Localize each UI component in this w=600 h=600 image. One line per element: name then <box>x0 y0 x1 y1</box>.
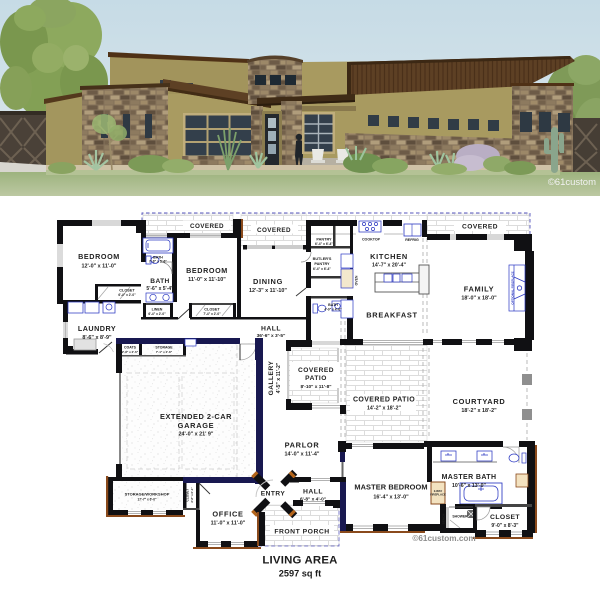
svg-text:6'-4" x 6'-4": 6'-4" x 6'-4" <box>315 242 333 246</box>
svg-text:17'-7" x 6'-0": 17'-7" x 6'-0" <box>137 498 157 502</box>
svg-text:12'-3" x 11'-10": 12'-3" x 11'-10" <box>249 288 287 294</box>
svg-text:HALL: HALL <box>261 326 281 333</box>
svg-text:6'-4" x 2'-0": 6'-4" x 2'-0" <box>148 312 166 316</box>
svg-text:OVEN: OVEN <box>355 275 359 285</box>
svg-text:KITCHEN: KITCHEN <box>370 252 408 261</box>
svg-text:11'-0" x 11'-0": 11'-0" x 11'-0" <box>211 521 246 527</box>
svg-text:MASTER BEDROOM: MASTER BEDROOM <box>354 483 427 492</box>
svg-text:COVERED: COVERED <box>190 223 224 230</box>
svg-text:GARAGE: GARAGE <box>178 421 215 430</box>
svg-text:SHOWER: SHOWER <box>452 515 468 519</box>
svg-text:BATH: BATH <box>328 303 338 307</box>
svg-text:PATIO: PATIO <box>305 375 327 382</box>
svg-text:18'-0" x 18'-0": 18'-0" x 18'-0" <box>461 296 497 302</box>
svg-text:18'-2" x 18'-2": 18'-2" x 18'-2" <box>461 408 497 414</box>
svg-text:CLOSET: CLOSET <box>490 514 520 521</box>
svg-text:14'-7" x 20'-4": 14'-7" x 20'-4" <box>372 263 406 269</box>
svg-text:6'-4" x 2'-0": 6'-4" x 2'-0" <box>118 293 136 297</box>
svg-text:6'-8" x 4'-0": 6'-8" x 4'-0" <box>300 497 326 503</box>
svg-text:2'-8" x 6'-1": 2'-8" x 6'-1" <box>190 487 194 503</box>
svg-text:6'-4" x 6'-4": 6'-4" x 6'-4" <box>313 267 331 271</box>
svg-text:CLOSET: CLOSET <box>186 488 190 501</box>
svg-text:4'-5" x 11'-2": 4'-5" x 11'-2" <box>276 362 282 393</box>
svg-text:11'-0" x 11'-10": 11'-0" x 11'-10" <box>188 277 226 283</box>
svg-text:BEDROOM: BEDROOM <box>186 266 228 275</box>
svg-text:REFRIG: REFRIG <box>405 238 419 242</box>
svg-text:EXTENDED 2-CAR: EXTENDED 2-CAR <box>160 412 232 421</box>
svg-text:9'-0" x 8'-3": 9'-0" x 8'-3" <box>491 523 519 529</box>
svg-text:2'-8" x 2'-6": 2'-8" x 2'-6" <box>122 350 139 354</box>
svg-text:COVERED: COVERED <box>298 367 334 374</box>
svg-text:14'-2" x 18'-2": 14'-2" x 18'-2" <box>367 406 401 412</box>
svg-text:PANTRY: PANTRY <box>314 262 330 266</box>
svg-text:LIVING AREA: LIVING AREA <box>262 555 337 567</box>
svg-text:36'-6" x 3'-5": 36'-6" x 3'-5" <box>257 333 286 339</box>
svg-text:BREAKFAST: BREAKFAST <box>366 311 417 320</box>
svg-text:OPTIONAL FIREPLACE: OPTIONAL FIREPLACE <box>511 271 515 304</box>
svg-text:12'-0" x 11'-0": 12'-0" x 11'-0" <box>82 264 117 270</box>
svg-text:BENCH: BENCH <box>442 514 446 525</box>
svg-text:HALL: HALL <box>303 489 323 496</box>
svg-text:5'-6" x 5'-4": 5'-6" x 5'-4" <box>146 286 174 292</box>
svg-text:COVERED PATIO: COVERED PATIO <box>353 397 415 404</box>
svg-text:COURTYARD: COURTYARD <box>453 397 506 406</box>
svg-text:7'-8" x 5'-6": 7'-8" x 5'-6" <box>149 260 167 264</box>
svg-text:8'-6" x 8'-9": 8'-6" x 8'-9" <box>82 335 112 341</box>
svg-text:8'-10" x 11'-8": 8'-10" x 11'-8" <box>300 384 331 390</box>
svg-text:16'-4" x 13'-0": 16'-4" x 13'-0" <box>373 495 409 501</box>
svg-text:COVERED: COVERED <box>257 227 291 234</box>
svg-text:CLOSET: CLOSET <box>119 289 135 293</box>
svg-text:ENTRY: ENTRY <box>261 491 286 498</box>
svg-text:4'-9" x 4'-6": 4'-9" x 4'-6" <box>324 308 342 312</box>
svg-text:OFFICE: OFFICE <box>212 510 243 519</box>
svg-text:GALLERY: GALLERY <box>268 361 275 396</box>
svg-text:7'-4" x 2'-0": 7'-4" x 2'-0" <box>203 312 221 316</box>
svg-text:7'-1" x 2'-8": 7'-1" x 2'-8" <box>156 350 173 354</box>
svg-text:FRONT PORCH: FRONT PORCH <box>274 529 329 536</box>
svg-text:COVERED: COVERED <box>462 224 498 231</box>
svg-text:24'-0" x 21' 9": 24'-0" x 21' 9" <box>179 432 214 438</box>
svg-text:CLOSET: CLOSET <box>204 308 220 312</box>
svg-text:LAUNDRY: LAUNDRY <box>78 324 116 333</box>
svg-text:LINEN: LINEN <box>152 308 163 312</box>
svg-text:14'-0" x 11'-4": 14'-0" x 11'-4" <box>285 452 320 458</box>
svg-text:PARLOR: PARLOR <box>285 441 320 450</box>
svg-text:10'-6" x 13'-0": 10'-6" x 13'-0" <box>452 483 486 489</box>
svg-text:BEDROOM: BEDROOM <box>78 252 120 261</box>
svg-text:©61custom: ©61custom <box>548 177 596 188</box>
svg-text:FAMILY: FAMILY <box>464 285 495 294</box>
svg-text:©61custom.com: ©61custom.com <box>412 534 475 543</box>
svg-text:MASTER BATH: MASTER BATH <box>442 474 497 481</box>
svg-text:2597 sq ft: 2597 sq ft <box>279 569 321 579</box>
svg-text:FIREPLACE: FIREPLACE <box>430 493 446 497</box>
svg-text:BUTLER'S: BUTLER'S <box>313 257 332 261</box>
svg-text:PANTRY: PANTRY <box>316 238 332 242</box>
svg-text:DINING: DINING <box>253 277 283 286</box>
svg-text:STORAGE/WORKSHOP: STORAGE/WORKSHOP <box>125 492 170 497</box>
svg-text:COOKTOP: COOKTOP <box>362 238 381 242</box>
svg-text:BATH: BATH <box>150 278 169 285</box>
